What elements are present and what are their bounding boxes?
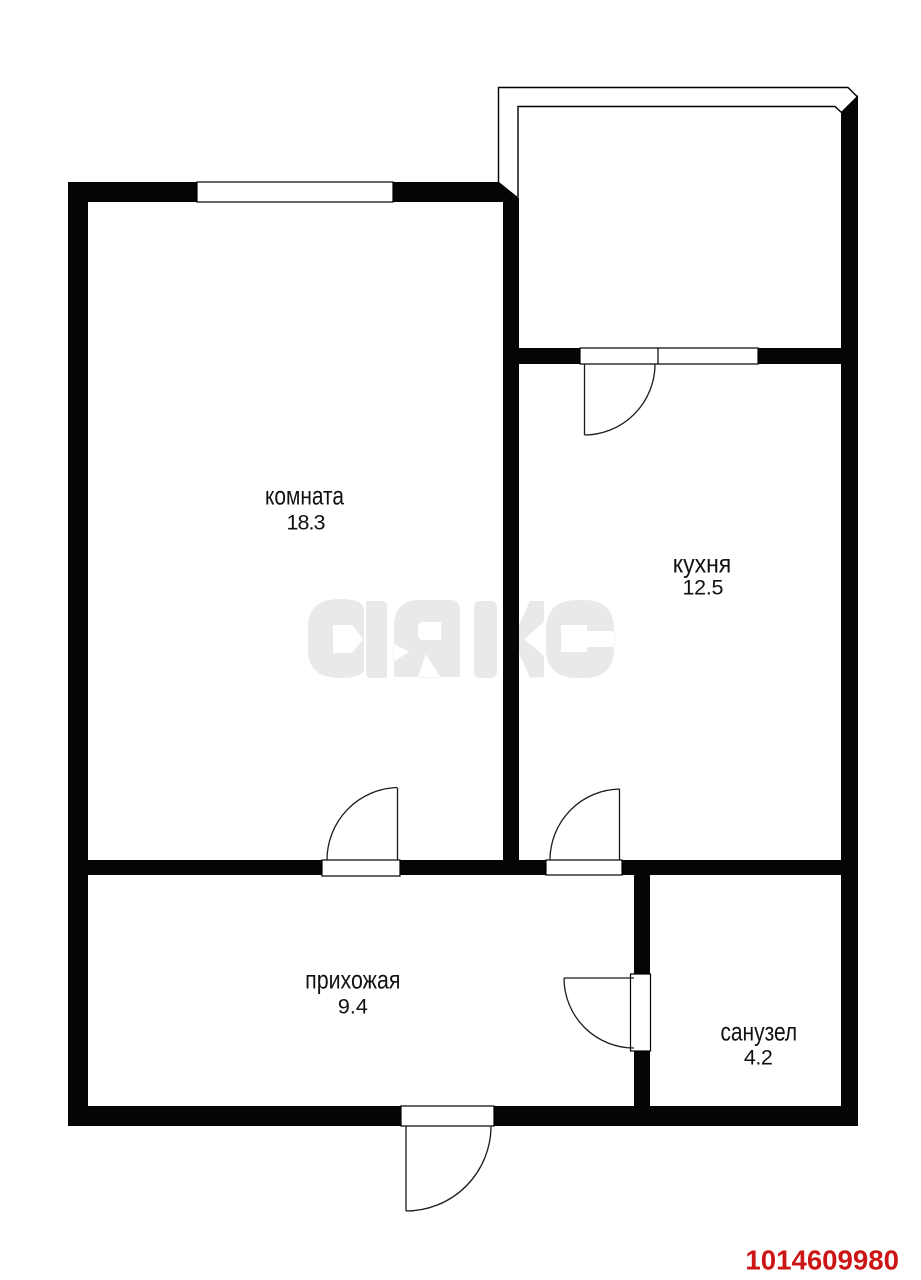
svg-text:комната: комната bbox=[265, 481, 344, 511]
svg-text:4.2: 4.2 bbox=[744, 1046, 773, 1070]
svg-text:18.3: 18.3 bbox=[287, 511, 326, 535]
svg-text:12.5: 12.5 bbox=[683, 576, 724, 600]
svg-text:санузел: санузел bbox=[720, 1016, 797, 1046]
svg-text:кухня: кухня bbox=[673, 548, 732, 578]
svg-text:прихожая: прихожая bbox=[305, 964, 400, 994]
svg-text:1014609980: 1014609980 bbox=[745, 1245, 899, 1276]
svg-text:9.4: 9.4 bbox=[338, 995, 368, 1019]
